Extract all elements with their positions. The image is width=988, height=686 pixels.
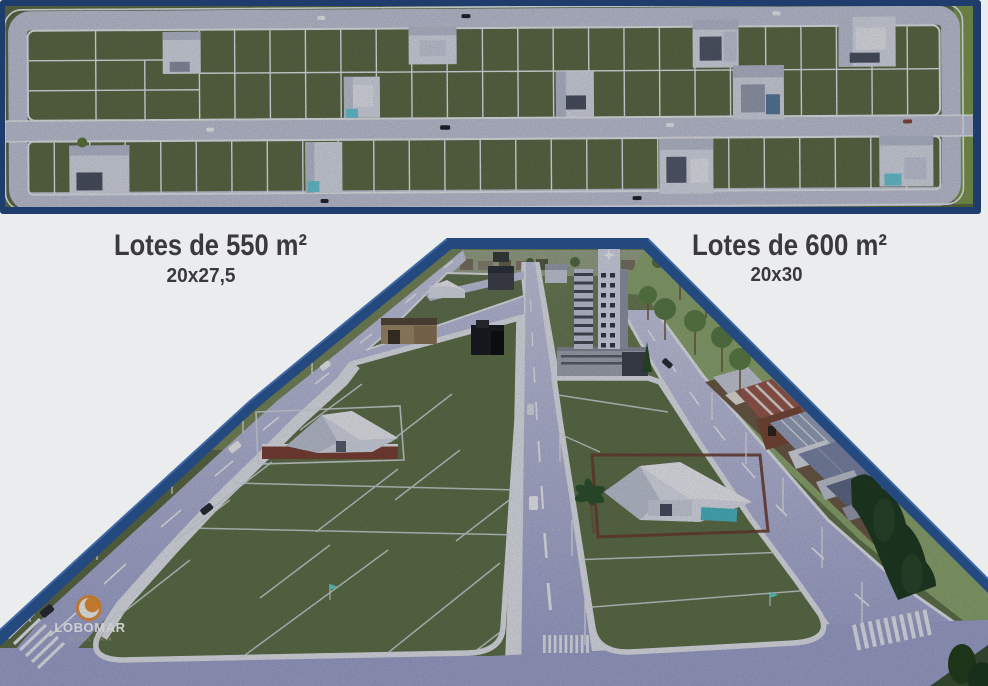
svg-text:20x27,5: 20x27,5	[167, 265, 236, 287]
svg-text:20x30: 20x30	[751, 264, 803, 286]
svg-text:Lotes de 600 m²: Lotes de 600 m²	[692, 229, 887, 262]
svg-text:Lotes de 550 m²: Lotes de 550 m²	[114, 229, 307, 262]
